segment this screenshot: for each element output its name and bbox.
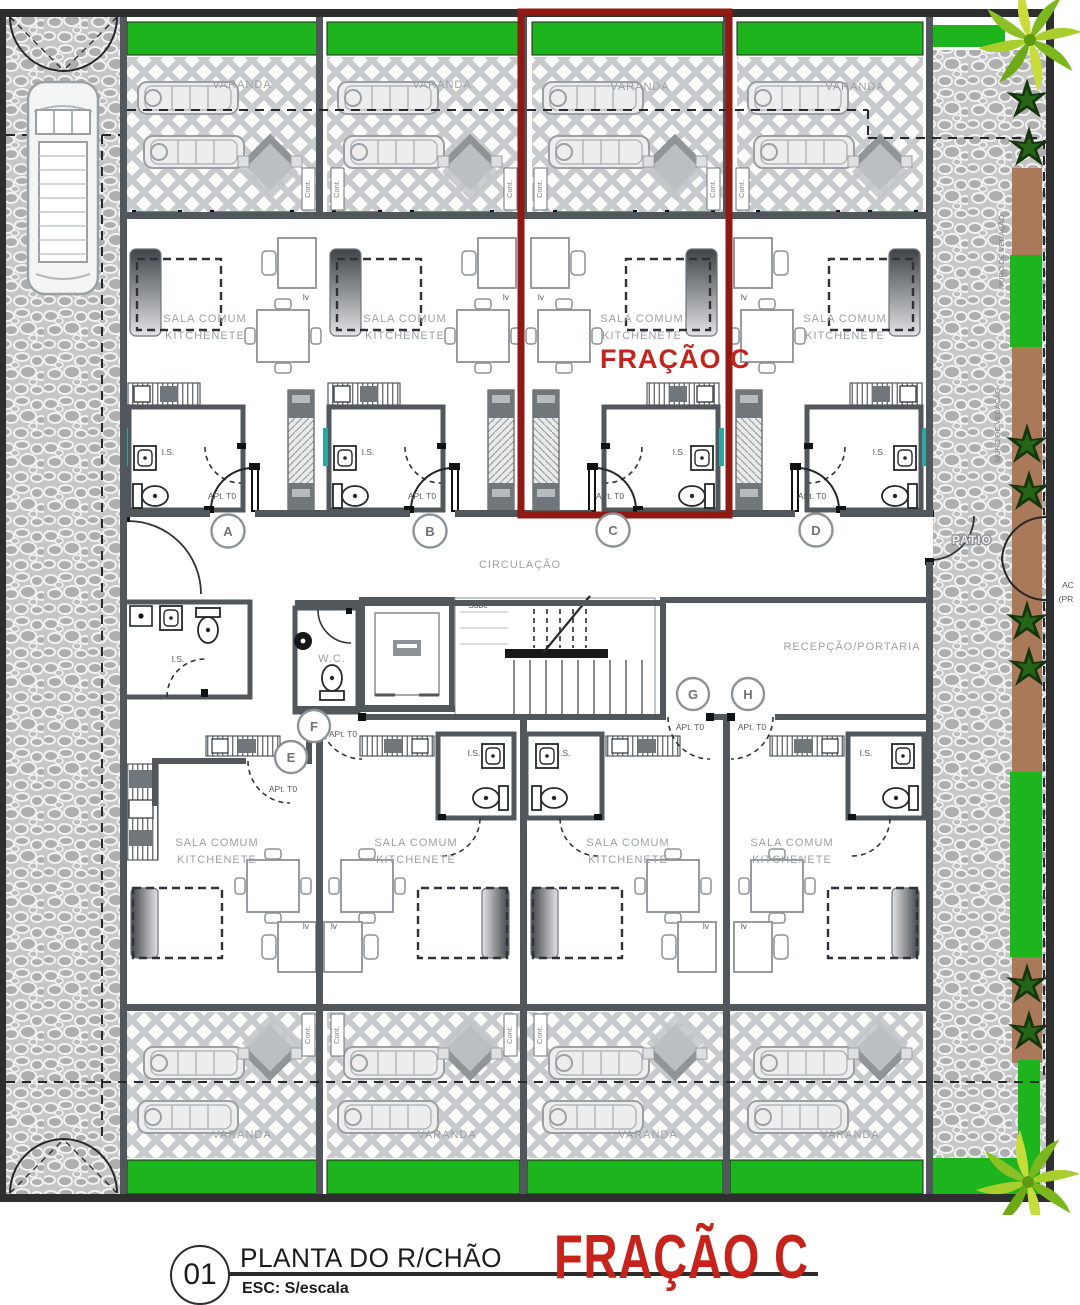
svg-text:lv: lv [741,921,748,931]
marker-D: D [800,514,833,547]
circulacao-label: CIRCULAÇÃO [479,558,561,571]
svg-text:F: F [310,719,318,734]
varanda-label: VARANDA [825,81,884,93]
svg-text:SALA COMUM: SALA COMUM [163,313,246,325]
patio-label: PATIO [952,533,992,547]
svg-text:I.S.: I.S. [558,748,571,758]
svg-text:I.S.: I.S. [468,748,481,758]
varanda-label: VARANDA [412,79,471,91]
svg-text:APt. T0: APt. T0 [269,784,297,794]
svg-text:(PR: (PR [1059,594,1074,604]
svg-text:Cont.: Cont. [303,180,312,198]
wc-label: W.C. [318,653,346,665]
svg-text:I.S.: I.S. [162,447,175,457]
varanda-label: VARANDA [212,1129,271,1141]
svg-text:lv: lv [303,921,310,931]
svg-text:Cont.: Cont. [332,1026,341,1044]
svg-text:Cont.: Cont. [737,180,746,198]
floor-plan-drawing: A B C D E F G H Cont. Cont. Cont. Cont. … [0,0,1080,1215]
svg-text:APt. T0: APt. T0 [798,491,826,501]
svg-text:SALA COMUM: SALA COMUM [363,313,446,325]
svg-text:KITCHENETE: KITCHENETE [376,854,456,866]
svg-text:SALA COMUM: SALA COMUM [600,313,683,325]
svg-text:Cont.: Cont. [535,180,544,198]
svg-text:I.S.: I.S. [362,447,375,457]
svg-text:KITCHENETE: KITCHENETE [588,854,668,866]
varanda-label: VARANDA [212,79,271,91]
marker-F: F [298,710,330,742]
svg-text:G: G [688,687,698,702]
svg-text:APt. T0: APt. T0 [329,729,357,739]
svg-text:Cont.: Cont. [505,180,514,198]
svg-text:APt. T0: APt. T0 [676,722,704,732]
svg-text:APt. T0: APt. T0 [738,722,766,732]
marker-G: G [677,678,709,710]
svg-text:SALA COMUM: SALA COMUM [586,837,669,849]
svg-text:I.S.: I.S. [873,447,886,457]
marker-C: C [597,514,630,547]
varanda-label: VARANDA [417,1129,476,1141]
svg-text:MURO DE VEDAÇÃO: MURO DE VEDAÇÃO [993,388,1002,462]
svg-text:KITCHENETE: KITCHENETE [365,330,445,342]
svg-text:E: E [287,750,296,765]
varanda-label: VARANDA [610,81,669,93]
svg-text:A: A [223,524,233,539]
drawing-title: PLANTA DO R/CHÃO [240,1243,502,1274]
elevator [362,600,452,708]
marker-H: H [732,678,764,710]
marker-A: A [212,515,245,548]
svg-text:lv: lv [331,921,338,931]
svg-text:D: D [811,523,820,538]
svg-text:I.S.: I.S. [172,654,185,664]
svg-text:SALA COMUM: SALA COMUM [374,837,457,849]
fracao-c-plan-label: FRAÇÃO C [600,343,751,374]
svg-text:Cont.: Cont. [332,180,341,198]
svg-text:lv: lv [303,292,310,302]
svg-text:lv: lv [703,921,710,931]
svg-text:KITCHENETE: KITCHENETE [602,330,682,342]
drawing-scale: ESC: S/escala [242,1280,349,1298]
drawing-number: 01 [183,1258,216,1292]
svg-text:APt. T0: APt. T0 [208,491,236,501]
svg-text:I.S.: I.S. [860,748,873,758]
stairs [455,596,655,718]
sube-label: Sube [468,600,488,610]
svg-text:H: H [743,687,752,702]
svg-text:Cont.: Cont. [505,1026,514,1044]
marker-B: B [414,515,447,548]
svg-text:AC: AC [1062,580,1074,590]
svg-text:B: B [425,524,434,539]
svg-text:KITCHENETE: KITCHENETE [165,330,245,342]
varanda-label: VARANDA [820,1129,879,1141]
svg-text:KITCHENETE: KITCHENETE [177,854,257,866]
svg-text:Cont.: Cont. [303,1026,312,1044]
svg-text:Cont.: Cont. [535,1026,544,1044]
svg-text:MURO DE VEDAÇÃO: MURO DE VEDAÇÃO [997,215,1006,289]
recepcao-label: RECEPÇÃO/PORTARIA [783,640,920,653]
svg-text:Cont.: Cont. [708,180,717,198]
varanda-label: VARANDA [618,1129,677,1141]
svg-text:C: C [608,523,618,538]
drawing-number-circle: 01 [170,1245,230,1305]
svg-text:SALA COMUM: SALA COMUM [175,837,258,849]
svg-text:APt. T0: APt. T0 [408,491,436,501]
svg-text:I.S.: I.S. [673,447,686,457]
marker-E: E [275,741,307,773]
svg-text:lv: lv [538,292,545,302]
svg-text:lv: lv [503,292,510,302]
svg-text:SALA COMUM: SALA COMUM [803,313,886,325]
svg-text:lv: lv [741,292,748,302]
fracao-c-title: FRAÇÃO C [554,1222,809,1293]
svg-text:SALA COMUM: SALA COMUM [750,837,833,849]
svg-text:KITCHENETE: KITCHENETE [752,854,832,866]
floor-plan-sheet: A B C D E F G H Cont. Cont. Cont. Cont. … [0,0,1080,1305]
svg-text:KITCHENETE: KITCHENETE [805,330,885,342]
svg-text:APt. T0: APt. T0 [596,491,624,501]
